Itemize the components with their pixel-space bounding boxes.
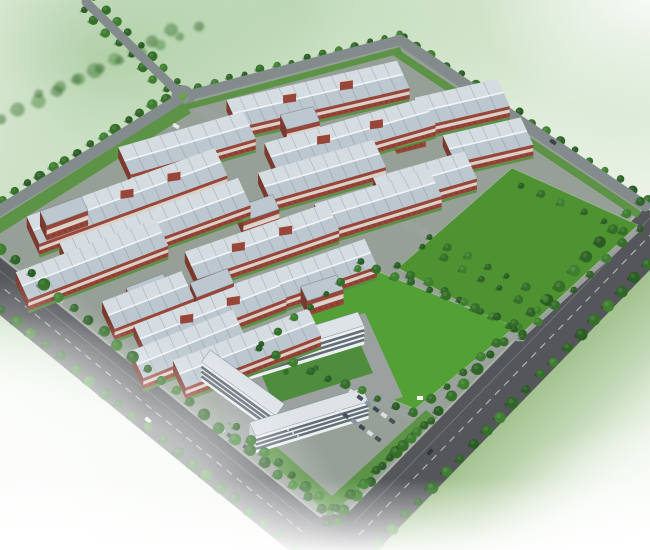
tree-highlight <box>0 197 3 200</box>
tree-highlight <box>388 455 391 458</box>
tree-highlight <box>638 198 642 202</box>
tree-highlight <box>466 253 469 256</box>
tree-highlight <box>58 352 62 356</box>
tree-highlight <box>398 31 401 34</box>
tree-highlight <box>338 279 341 282</box>
tree-highlight <box>40 280 45 285</box>
tree-highlight <box>393 403 396 406</box>
tree-highlight <box>196 23 200 27</box>
tree-highlight <box>243 72 245 74</box>
tree-highlight <box>148 37 153 42</box>
tree-highlight <box>445 245 448 248</box>
tree-highlight <box>12 256 16 260</box>
tree-highlight <box>383 36 386 39</box>
tree-highlight <box>261 449 265 453</box>
tree-highlight <box>460 267 463 270</box>
tree-highlight <box>582 210 585 213</box>
tree-highlight <box>573 147 576 150</box>
tree-highlight <box>488 352 491 355</box>
tree-highlight <box>324 292 326 294</box>
tree-highlight <box>246 446 251 451</box>
tree-highlight <box>112 126 116 130</box>
tree-highlight <box>215 424 220 429</box>
tree-highlight <box>428 483 433 488</box>
tree-highlight <box>604 302 609 307</box>
tree-highlight <box>644 261 648 265</box>
tree-highlight <box>373 467 377 471</box>
tree-highlight <box>336 47 339 50</box>
tree-highlight <box>511 320 514 323</box>
tree-highlight <box>501 339 505 343</box>
tree-highlight <box>86 377 91 382</box>
tree-highlight <box>624 210 628 214</box>
tree-highlight <box>621 228 624 231</box>
tree-highlight <box>442 255 445 258</box>
tree-highlight <box>448 392 452 396</box>
tree-highlight <box>472 305 476 309</box>
tree-highlight <box>638 227 641 230</box>
tree-highlight <box>484 427 488 431</box>
tree-highlight <box>460 380 465 385</box>
tree-highlight <box>356 266 359 269</box>
tree-highlight <box>103 7 107 11</box>
tree-highlight <box>247 509 251 513</box>
tree-highlight <box>400 442 404 446</box>
tree-highlight <box>582 253 587 258</box>
tree-highlight <box>82 7 85 10</box>
tree-highlight <box>422 423 425 426</box>
tree-highlight <box>137 110 141 114</box>
tree-highlight <box>72 305 75 308</box>
tree-highlight <box>257 66 260 69</box>
tree-highlight <box>140 64 144 68</box>
tree-highlight <box>408 435 412 439</box>
tree-highlight <box>308 368 311 371</box>
tree-highlight <box>550 359 554 363</box>
tree-highlight <box>73 366 77 370</box>
tree-highlight <box>479 309 482 312</box>
tree-highlight <box>395 263 398 266</box>
tree-highlight <box>590 316 595 321</box>
tree-highlight <box>248 437 252 441</box>
tree-highlight <box>524 386 527 389</box>
tree-highlight <box>13 317 18 322</box>
tree-highlight <box>528 309 532 313</box>
roundabout-island <box>179 93 188 102</box>
tree-highlight <box>368 39 370 41</box>
tree-highlight <box>524 284 527 287</box>
tree-highlight <box>494 340 498 344</box>
tree-highlight <box>408 272 412 276</box>
tree-highlight <box>330 505 333 508</box>
tree-highlight <box>361 480 365 484</box>
tree-highlight <box>293 543 297 547</box>
tree-highlight <box>572 288 575 291</box>
tree-highlight <box>27 330 31 334</box>
tree-highlight <box>486 265 489 268</box>
tree-highlight <box>90 17 94 21</box>
tree-highlight <box>535 308 538 311</box>
tree-highlight <box>234 424 237 427</box>
tree-highlight <box>360 387 363 390</box>
tree-highlight <box>352 43 355 46</box>
tree-highlight <box>212 80 215 83</box>
tree-highlight <box>61 158 65 162</box>
tree-row <box>80 6 182 105</box>
tree-highlight <box>392 273 396 277</box>
tree-highlight <box>435 407 439 411</box>
tree-highlight <box>202 471 207 476</box>
tree-highlight <box>305 494 309 498</box>
tree-highlight <box>543 128 547 132</box>
tree-highlight <box>403 511 407 515</box>
tree-highlight <box>478 354 482 358</box>
tree-highlight <box>50 163 54 167</box>
tree-highlight <box>373 266 377 270</box>
tree-highlight <box>111 55 116 60</box>
tree-highlight <box>12 188 15 191</box>
tree-highlight <box>552 302 556 306</box>
tree-highlight <box>292 314 295 317</box>
tree-highlight <box>167 25 172 30</box>
tree-highlight <box>603 219 605 221</box>
flagpole <box>297 435 299 437</box>
tree-highlight <box>520 335 523 338</box>
tree-highlight <box>443 468 447 472</box>
tree-highlight <box>558 200 561 203</box>
tree-highlight <box>200 410 205 415</box>
tree-highlight <box>320 51 323 54</box>
tree-highlight <box>596 238 601 243</box>
tree-highlight <box>342 381 346 385</box>
tree-highlight <box>290 61 292 63</box>
tree-highlight <box>129 353 134 358</box>
tree-highlight <box>101 134 105 138</box>
tree-highlight <box>512 327 515 330</box>
tree-highlight <box>325 520 328 523</box>
tree-highlight <box>445 384 448 387</box>
tree-highlight <box>76 75 81 80</box>
aerial-rendering-canvas <box>0 0 650 550</box>
tree-highlight <box>335 519 338 522</box>
tree-highlight <box>457 456 460 459</box>
tree-highlight <box>175 79 178 82</box>
tree-highlight <box>498 286 500 288</box>
tree-highlight <box>374 539 379 544</box>
tree-highlight <box>457 298 460 301</box>
tree-highlight <box>274 471 278 475</box>
tree-highlight <box>578 330 583 335</box>
tree-highlight <box>158 377 162 381</box>
tree-highlight <box>305 55 308 58</box>
tree-highlight <box>517 109 520 112</box>
tree-highlight <box>227 75 230 78</box>
tree-highlight <box>428 235 430 237</box>
tree-highlight <box>461 370 464 373</box>
tree-highlight <box>117 57 120 60</box>
tree-highlight <box>231 494 236 499</box>
industrial-park-scene <box>0 0 650 550</box>
tree-highlight <box>428 395 432 399</box>
tree-highlight <box>536 319 539 322</box>
tree-highlight <box>101 328 105 332</box>
tree-highlight <box>125 29 128 32</box>
tree-highlight <box>163 95 167 99</box>
tree-highlight <box>276 459 280 463</box>
tree-highlight <box>88 141 91 144</box>
tree-highlight <box>316 493 320 497</box>
tree-highlight <box>116 401 119 404</box>
tree-highlight <box>290 359 294 363</box>
tree-highlight <box>102 30 106 34</box>
tree-highlight <box>618 288 623 293</box>
tree-highlight <box>389 525 394 530</box>
tree-highlight <box>479 277 482 280</box>
tree-highlight <box>505 274 507 276</box>
tree-highlight <box>261 458 266 463</box>
tree-highlight <box>113 341 118 346</box>
tree-highlight <box>376 396 379 399</box>
tree-highlight <box>102 390 107 395</box>
tree-highlight <box>308 305 311 308</box>
tree-highlight <box>326 376 329 379</box>
tree-highlight <box>145 366 148 369</box>
tree-highlight <box>392 448 397 453</box>
tree-highlight <box>421 245 423 247</box>
tree-highlight <box>97 65 101 69</box>
tree-highlight <box>157 41 161 45</box>
tree-highlight <box>275 63 278 66</box>
tree-highlight <box>55 294 59 298</box>
tree-highlight <box>75 150 79 154</box>
tree-highlight <box>340 506 345 511</box>
tree-highlight <box>588 272 591 275</box>
tree-highlight <box>187 399 191 403</box>
tree-highlight <box>543 296 546 299</box>
tree-highlight <box>645 196 649 200</box>
tree-highlight <box>429 418 432 421</box>
tree-highlight <box>302 483 306 487</box>
tree-highlight <box>127 117 130 120</box>
tree-highlight <box>347 491 351 495</box>
tree-highlight <box>519 184 521 186</box>
tree-highlight <box>36 91 39 94</box>
tree-highlight <box>603 168 606 171</box>
tree-highlight <box>161 65 164 68</box>
tree-highlight <box>56 83 61 88</box>
tree-highlight <box>29 270 32 273</box>
tree-highlight <box>460 71 463 74</box>
tree-highlight <box>538 370 542 374</box>
tree-highlight <box>139 43 142 46</box>
tree-highlight <box>259 342 261 344</box>
tree-highlight <box>261 520 265 524</box>
tree-highlight <box>231 435 236 440</box>
tree-highlight <box>25 180 28 183</box>
tree-highlight <box>495 314 498 317</box>
courtyard-bush <box>283 369 289 375</box>
tree-highlight <box>177 34 180 37</box>
tree-highlight <box>275 329 278 332</box>
tree-highlight <box>273 352 277 356</box>
tree-highlight <box>461 299 464 302</box>
tree-highlight <box>114 18 118 22</box>
tree-highlight <box>290 482 294 486</box>
tree-highlight <box>473 365 478 370</box>
tree-highlight <box>380 463 383 466</box>
tree-highlight <box>276 531 280 535</box>
tree-highlight <box>149 101 153 105</box>
tree-highlight <box>610 226 614 230</box>
tree-highlight <box>630 273 635 278</box>
tree-highlight <box>471 440 475 444</box>
tree-highlight <box>426 279 430 283</box>
tree-highlight <box>414 429 418 433</box>
tree-highlight <box>161 436 165 440</box>
exit-road <box>86 2 183 97</box>
tree-highlight <box>508 399 513 404</box>
tree-highlight <box>195 85 198 88</box>
tree-highlight <box>516 296 519 299</box>
tree-highlight <box>85 317 89 321</box>
tree-highlight <box>319 505 323 509</box>
tree-highlight <box>174 387 178 391</box>
tree-highlight <box>416 499 419 502</box>
tree-highlight <box>149 53 153 57</box>
tree-highlight <box>411 410 414 413</box>
tree-highlight <box>409 279 412 282</box>
tree-highlight <box>604 255 608 259</box>
tree-highlight <box>443 292 447 296</box>
tree-highlight <box>490 314 493 317</box>
flagpole <box>292 432 294 434</box>
tree-highlight <box>539 191 542 194</box>
entrance-sign <box>417 396 423 400</box>
tree-highlight <box>190 461 195 466</box>
tree-highlight <box>150 77 153 80</box>
tree-highlight <box>618 176 621 179</box>
tree-highlight <box>570 267 575 272</box>
tree-highlight <box>359 259 362 262</box>
tree-highlight <box>175 448 180 453</box>
tree-highlight <box>130 413 134 417</box>
tree-highlight <box>145 424 149 428</box>
tree-highlight <box>44 341 47 344</box>
tree-highlight <box>565 344 569 348</box>
flagpole <box>287 429 289 431</box>
tree-highlight <box>334 505 337 508</box>
tree-highlight <box>556 282 561 287</box>
tree-highlight <box>217 484 222 489</box>
tree-highlight <box>619 239 623 243</box>
tree-highlight <box>36 172 40 176</box>
tree-highlight <box>428 288 431 291</box>
tree-highlight <box>13 105 19 111</box>
tree-highlight <box>290 473 293 476</box>
tree-highlight <box>496 414 501 419</box>
